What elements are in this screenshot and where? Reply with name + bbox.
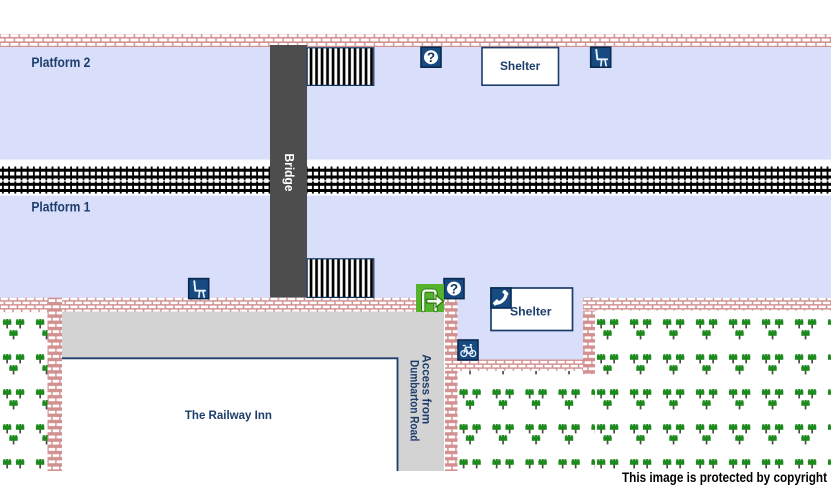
svg-text:Bridge: Bridge <box>282 154 296 192</box>
svg-text:Dumbarton Road: Dumbarton Road <box>408 360 422 441</box>
svg-text:This image is protected by cop: This image is protected by copyright <box>622 470 827 485</box>
svg-text:Shelter: Shelter <box>500 59 541 73</box>
svg-text:Platform 2: Platform 2 <box>31 55 90 70</box>
svg-text:Shelter: Shelter <box>510 305 552 319</box>
svg-text:Platform 1: Platform 1 <box>31 199 90 214</box>
svg-text:The Railway Inn: The Railway Inn <box>185 408 272 422</box>
